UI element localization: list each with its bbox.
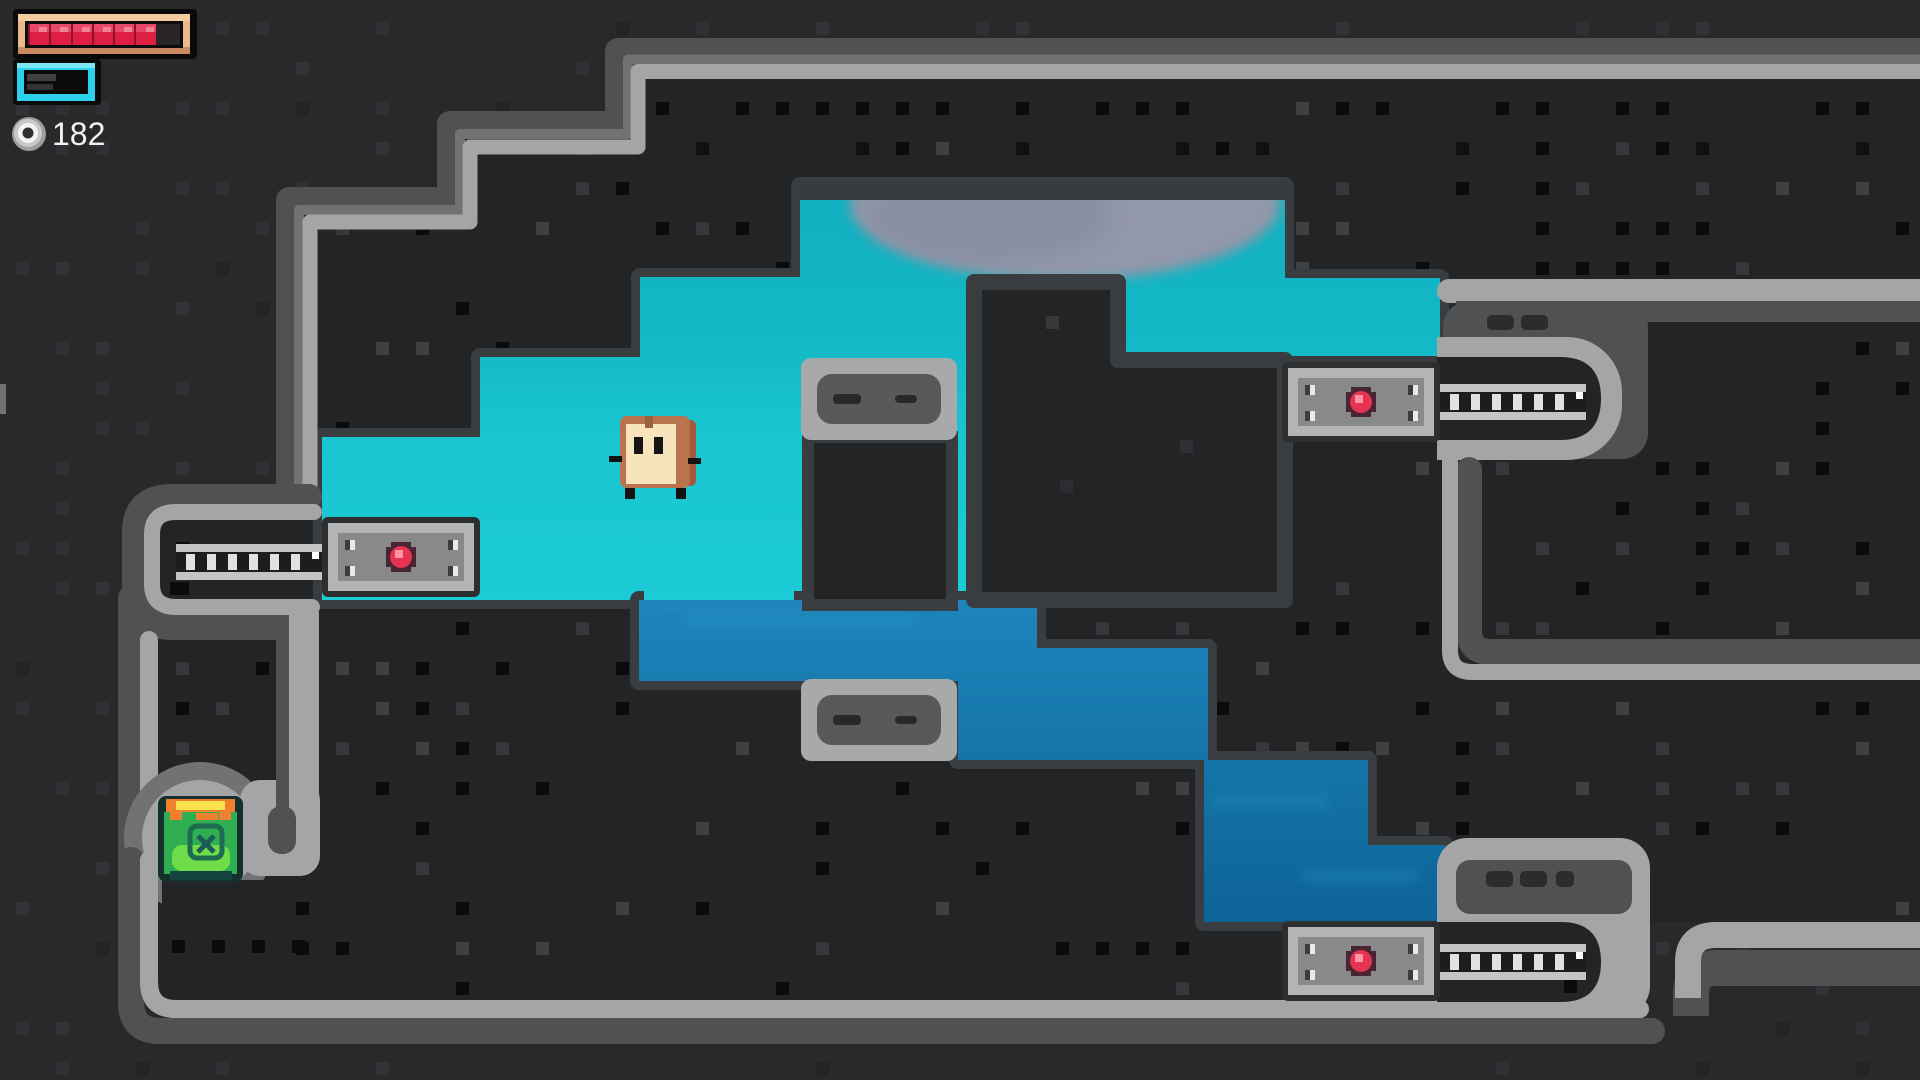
svg-text:182: 182 xyxy=(52,116,105,152)
